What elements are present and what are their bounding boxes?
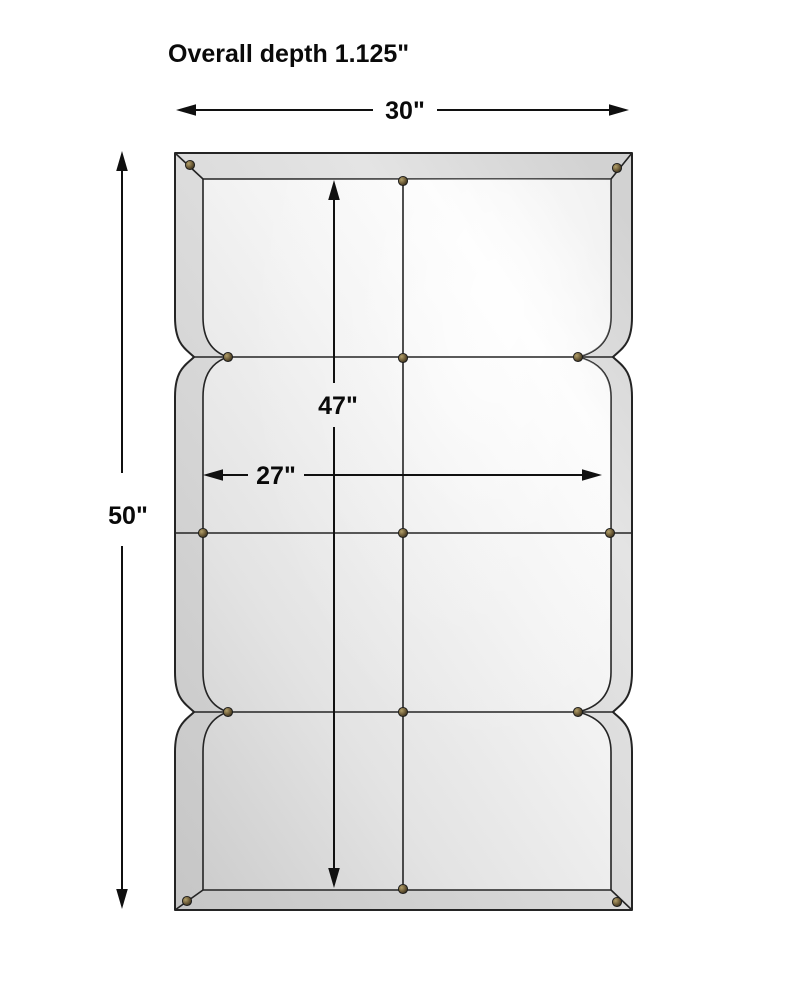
- rosette-screw: [573, 707, 582, 716]
- width-arrowhead-right: [609, 104, 629, 116]
- rosette-screw: [198, 528, 207, 537]
- rosette-screw: [182, 896, 191, 905]
- dimension-diagram: Overall depth 1.125" 30" 50" 47": [0, 0, 806, 1000]
- overall-depth-label: Overall depth 1.125": [168, 40, 409, 68]
- rosette-screw: [398, 707, 407, 716]
- mirror-dimension-drawing: Overall depth 1.125" 30" 50" 47": [0, 0, 806, 1000]
- rosette-screw: [398, 528, 407, 537]
- width-arrowhead-left: [176, 104, 196, 116]
- inner-width-dimension-label: 27": [256, 462, 296, 490]
- rosette-screw: [612, 163, 621, 172]
- rosette-screw: [398, 884, 407, 893]
- inner-height-dimension-label: 47": [318, 392, 358, 420]
- rosette-screw: [223, 352, 232, 361]
- rosette-screw: [398, 353, 407, 362]
- height-arrowhead-down: [116, 889, 128, 909]
- rosette-screw: [605, 528, 614, 537]
- rosette-screw: [398, 176, 407, 185]
- rosette-screw: [573, 352, 582, 361]
- height-arrowhead-up: [116, 151, 128, 171]
- height-dimension-label: 50": [108, 502, 148, 530]
- rosette-screw: [223, 707, 232, 716]
- width-dimension-label: 30": [385, 97, 425, 125]
- rosette-screw: [612, 897, 621, 906]
- rosette-screw: [185, 160, 194, 169]
